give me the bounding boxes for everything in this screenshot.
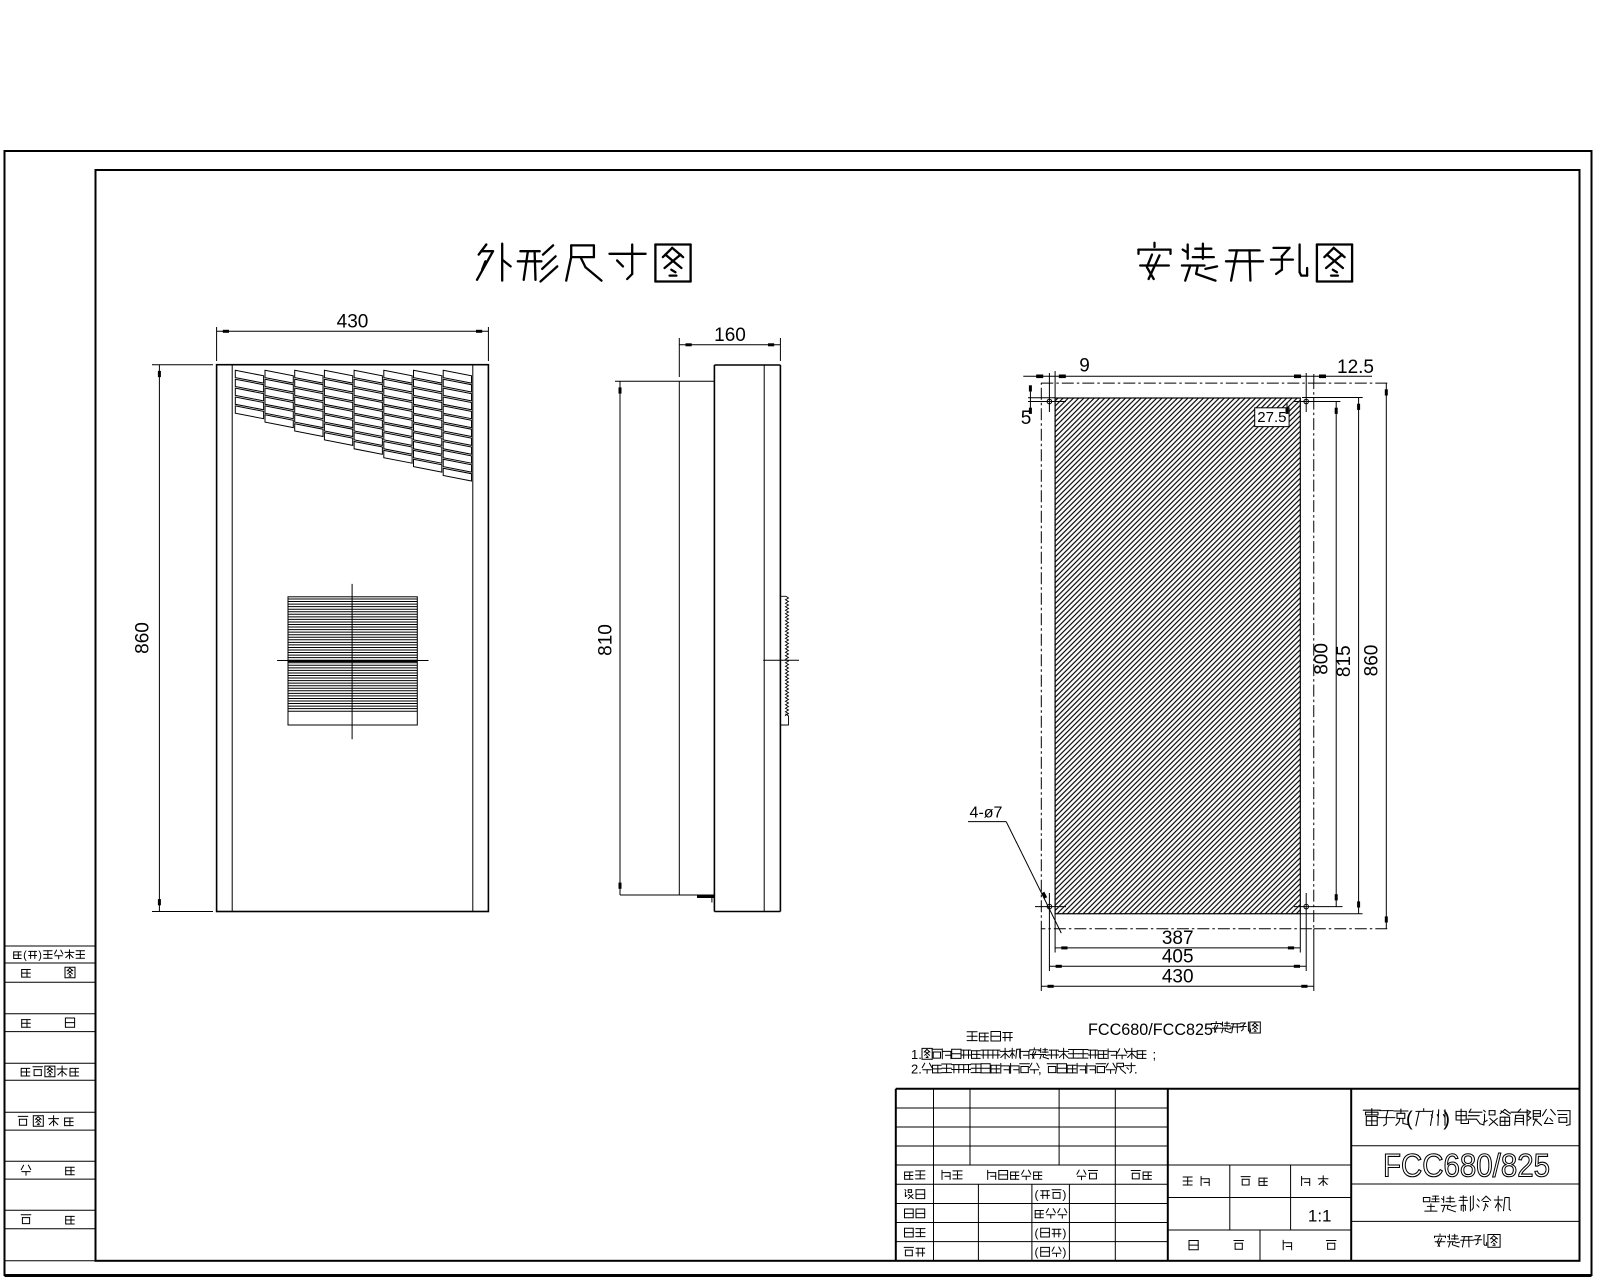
svg-text:405: 405 <box>1162 947 1194 968</box>
svg-text:,: , <box>1038 1062 1042 1077</box>
svg-text:2.: 2. <box>911 1062 922 1077</box>
svg-text:4-ø7: 4-ø7 <box>970 805 1003 822</box>
svg-text:1.: 1. <box>911 1047 922 1062</box>
svg-text:9: 9 <box>1079 356 1090 377</box>
svg-text:): ) <box>1062 1188 1066 1202</box>
svg-text:5: 5 <box>1021 408 1032 429</box>
svg-text:(: ( <box>23 950 27 962</box>
svg-text:(: ( <box>1034 1245 1038 1259</box>
svg-text:430: 430 <box>1162 967 1194 988</box>
svg-text:): ) <box>1062 1226 1066 1240</box>
svg-text:): ) <box>38 950 42 962</box>
svg-text:430: 430 <box>337 312 369 333</box>
svg-text:.: . <box>1134 1062 1138 1077</box>
svg-text:860: 860 <box>1362 645 1383 677</box>
svg-text:(: ( <box>1406 1107 1413 1130</box>
svg-text:(: ( <box>1034 1188 1038 1202</box>
svg-text:;: ; <box>1153 1047 1157 1062</box>
svg-text:160: 160 <box>714 325 746 346</box>
svg-text:): ) <box>1062 1245 1066 1259</box>
svg-text:800: 800 <box>1312 643 1333 675</box>
svg-text:1:1: 1:1 <box>1308 1207 1332 1226</box>
svg-text:FCC680/825: FCC680/825 <box>1383 1148 1550 1184</box>
svg-text:12.5: 12.5 <box>1337 357 1374 378</box>
svg-text:): ) <box>1443 1107 1450 1130</box>
svg-text:(: ( <box>1034 1226 1038 1240</box>
svg-text:27.5: 27.5 <box>1257 409 1286 426</box>
svg-text:FCC680/FCC825: FCC680/FCC825 <box>1088 1020 1213 1039</box>
svg-text:815: 815 <box>1334 645 1355 677</box>
svg-text:810: 810 <box>596 624 617 656</box>
svg-text:860: 860 <box>133 622 154 654</box>
